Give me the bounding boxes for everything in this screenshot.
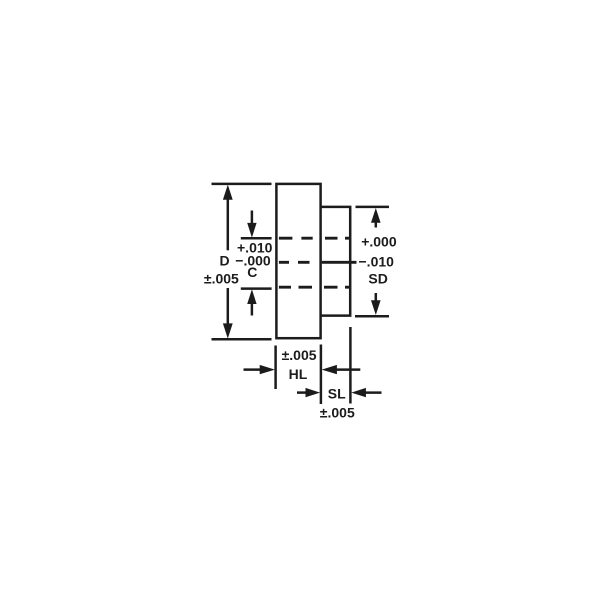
svg-text:HL: HL [289,366,308,382]
svg-text:SD: SD [368,270,387,286]
svg-text:C: C [247,264,257,280]
svg-text:±.005: ±.005 [282,347,317,363]
svg-text:−.010: −.010 [359,253,395,269]
svg-text:±.005: ±.005 [204,270,239,286]
svg-text:±.005: ±.005 [320,405,355,421]
svg-text:+.000: +.000 [361,233,397,249]
svg-text:D: D [220,253,230,269]
svg-text:SL: SL [328,385,346,401]
